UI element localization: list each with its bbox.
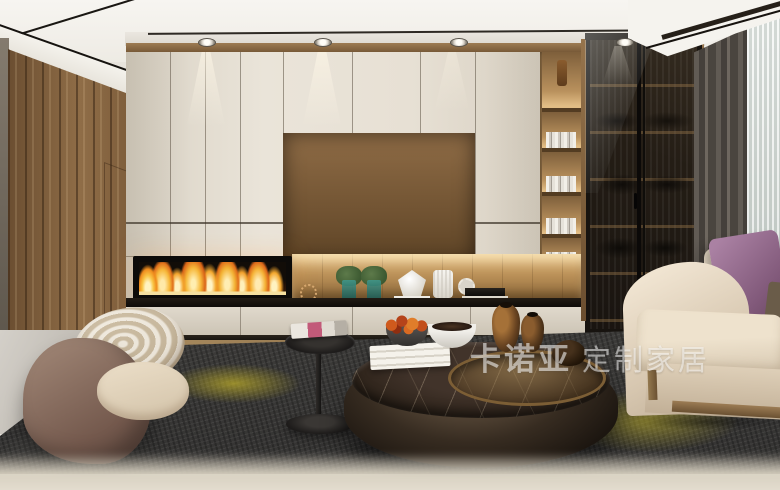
tv-recess [283, 133, 475, 262]
downlight [198, 38, 216, 47]
fireplace-flames [139, 262, 286, 295]
teal-glass-vase [342, 280, 356, 300]
coffee-table [340, 300, 622, 472]
display-shelves [540, 52, 585, 272]
shelf-books [546, 176, 576, 192]
watermark: 卡诺亚 定制家居 [470, 334, 710, 379]
sofa [620, 218, 780, 432]
shelf-cell [542, 112, 583, 152]
decor-figurine [557, 60, 567, 86]
teal-glass-vase [367, 280, 381, 300]
watermark-brand: 卡诺亚 [470, 334, 572, 379]
shelf-cell [542, 52, 583, 112]
marble-bowl-contents [432, 322, 472, 331]
downlight [616, 38, 634, 47]
shelf-books [546, 218, 576, 234]
white-book-stack [369, 342, 450, 370]
living-room-render: 卡诺亚 定制家居 [0, 0, 780, 490]
downlight [314, 38, 332, 47]
white-textured-vase [433, 270, 453, 298]
amber-vase-lip [500, 302, 512, 308]
black-book-stack [465, 288, 505, 296]
fireplace [133, 256, 292, 300]
accent-armchair [25, 308, 190, 466]
armchair-cushion [97, 362, 189, 420]
watermark-tagline: 定制家居 [582, 337, 710, 379]
foreground-blur [0, 456, 780, 490]
shelf-cell [542, 152, 583, 196]
left-wall-edge [0, 38, 9, 344]
decor-niche [292, 254, 585, 300]
shelf-books [546, 132, 576, 148]
drawer-seam [240, 307, 241, 335]
glass-door-handle [634, 193, 637, 209]
downlight [450, 38, 468, 47]
amber-vase-lip [527, 312, 538, 317]
orange-flowers [380, 312, 432, 336]
shelf-cell [542, 196, 583, 238]
sofa-shadow [634, 414, 780, 430]
side-table-stem [316, 352, 321, 416]
geometric-sculpture [398, 270, 426, 296]
